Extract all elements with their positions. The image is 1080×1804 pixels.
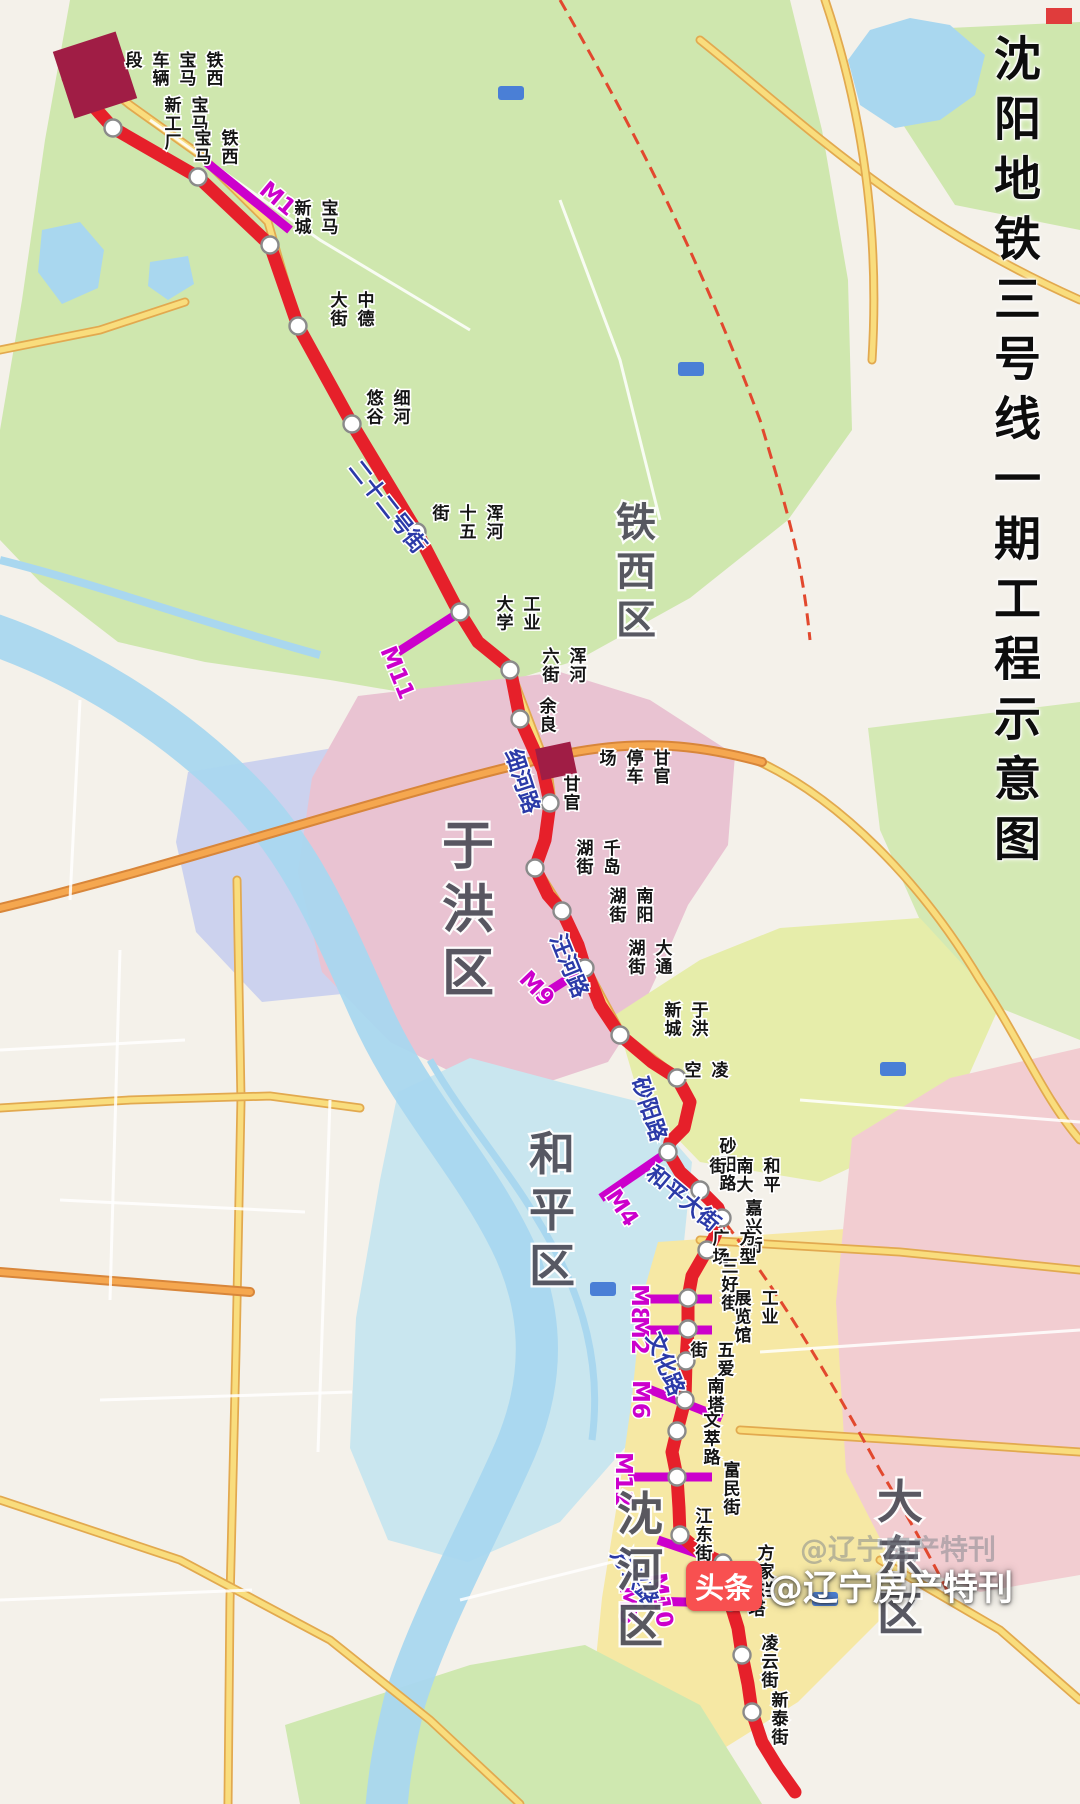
road-minor [60, 1200, 305, 1212]
station-label: 大街 [330, 290, 348, 330]
station-label: 十五 [460, 503, 477, 543]
station-dot [669, 1070, 686, 1087]
station-label: 宝马 [195, 128, 212, 168]
station-dot [190, 169, 207, 186]
station-label: 工业 [762, 1289, 779, 1328]
district-label: 铁西区 [616, 500, 656, 644]
station-label: 余良 [539, 696, 558, 736]
district-label: 沈河区 [617, 1487, 663, 1653]
station-label: 富民街 [723, 1460, 741, 1518]
station-label: 新城 [665, 1000, 682, 1040]
station-label: 南大 [737, 1156, 754, 1196]
station-dot [744, 1704, 761, 1721]
depot-label: 甘官 [654, 748, 671, 787]
route-badge [590, 1282, 616, 1296]
station-label: 新泰街 [771, 1690, 790, 1748]
station-dot [680, 1321, 697, 1338]
station-label: 六街 [542, 646, 560, 686]
depot-label: 铁西 [207, 50, 224, 89]
road-highway [0, 1272, 250, 1292]
station-dot [669, 1423, 686, 1440]
station-label: 湖街 [609, 887, 627, 926]
watermark: 头条 @辽宁房产特刊 [686, 1560, 1013, 1611]
station-label: 空 [685, 1060, 702, 1081]
station-label: 凌云街 [761, 1633, 780, 1691]
station-dot [554, 903, 571, 920]
route-badge [880, 1062, 906, 1076]
road-minor [70, 700, 80, 900]
station-dot [527, 860, 544, 877]
station-label: 方型 [740, 1228, 757, 1268]
road-minor [0, 1040, 185, 1050]
station-label: 浑河 [570, 646, 587, 686]
station-label: 南塔 [708, 1376, 726, 1416]
depot-label: 宝马 [180, 50, 197, 89]
route-badge [678, 362, 704, 376]
station-label: 湖街 [628, 939, 646, 978]
depot-label: 停车 [627, 748, 644, 787]
station-label: 于洪 [692, 1001, 709, 1040]
depot-label: 段 [126, 50, 143, 71]
station-label: 南阳 [637, 886, 654, 926]
station-label: 甘官 [564, 774, 581, 814]
station-label: 街 [709, 1156, 727, 1177]
watermark-text: @辽宁房产特刊 [768, 1560, 1013, 1611]
station-dot [669, 1469, 686, 1486]
road-minor [460, 1560, 620, 1600]
station-dot [672, 1527, 689, 1544]
station-dot [105, 120, 122, 137]
station-label: 文萃路 [704, 1410, 722, 1468]
road-minor [110, 950, 120, 1300]
toutiao-logo-icon: 头条 [686, 1561, 762, 1611]
station-label: 展览馆 [735, 1289, 752, 1346]
station-dot [680, 1290, 697, 1307]
station-label: 凌 [712, 1060, 730, 1081]
depot-label: 场 [600, 749, 617, 769]
station-label: 湖街 [576, 839, 594, 878]
station-label: 工业 [524, 595, 541, 634]
station-label: 街 [432, 503, 450, 524]
road-minor [318, 1100, 330, 1452]
station-label: 江东街 [695, 1507, 713, 1564]
station-label: 和平 [764, 1157, 781, 1196]
transfer-label-m6: M6 [627, 1380, 653, 1419]
station-dot [344, 416, 361, 433]
station-label: 大通 [656, 938, 673, 978]
station-dot [660, 1144, 677, 1161]
station-dot [612, 1027, 629, 1044]
station-label: 中德 [358, 290, 375, 330]
depot-label: 车辆 [153, 50, 170, 89]
station-label: 街 [690, 1340, 708, 1361]
district-region [836, 1048, 1080, 1592]
station-dot [542, 795, 559, 812]
station-label: 宝马 [322, 198, 339, 238]
station-dot [502, 662, 519, 679]
station-label: 新城 [295, 198, 312, 238]
station-label: 大学 [497, 594, 514, 634]
station-dot [452, 604, 469, 621]
station-label: 浑河 [487, 503, 504, 543]
station-label: 铁西 [222, 128, 239, 168]
district-label: 于洪区 [442, 817, 494, 1004]
route-badge [498, 86, 524, 100]
district-label: 和平区 [529, 1127, 575, 1293]
map-canvas: M1M11M9M4M8M2M6M12M10M5铁西宝马车辆段甘官停车场宝马新工厂… [0, 0, 1080, 1804]
station-label: 悠谷 [366, 388, 385, 428]
station-dot [262, 237, 279, 254]
station-label: 新工厂 [165, 95, 182, 153]
station-label: 细河 [394, 388, 411, 428]
station-label: 五爱 [718, 1341, 735, 1380]
station-label: 千岛 [604, 839, 621, 878]
road-minor [0, 1590, 252, 1600]
station-dot [677, 1392, 694, 1409]
station-dot [290, 318, 307, 335]
road-minor [100, 1392, 352, 1400]
corner-badge [1046, 8, 1072, 24]
station-dot [512, 711, 529, 728]
station-dot [734, 1647, 751, 1664]
map-title: 沈阳地铁三号线一期工程示意图 [981, 34, 1037, 874]
